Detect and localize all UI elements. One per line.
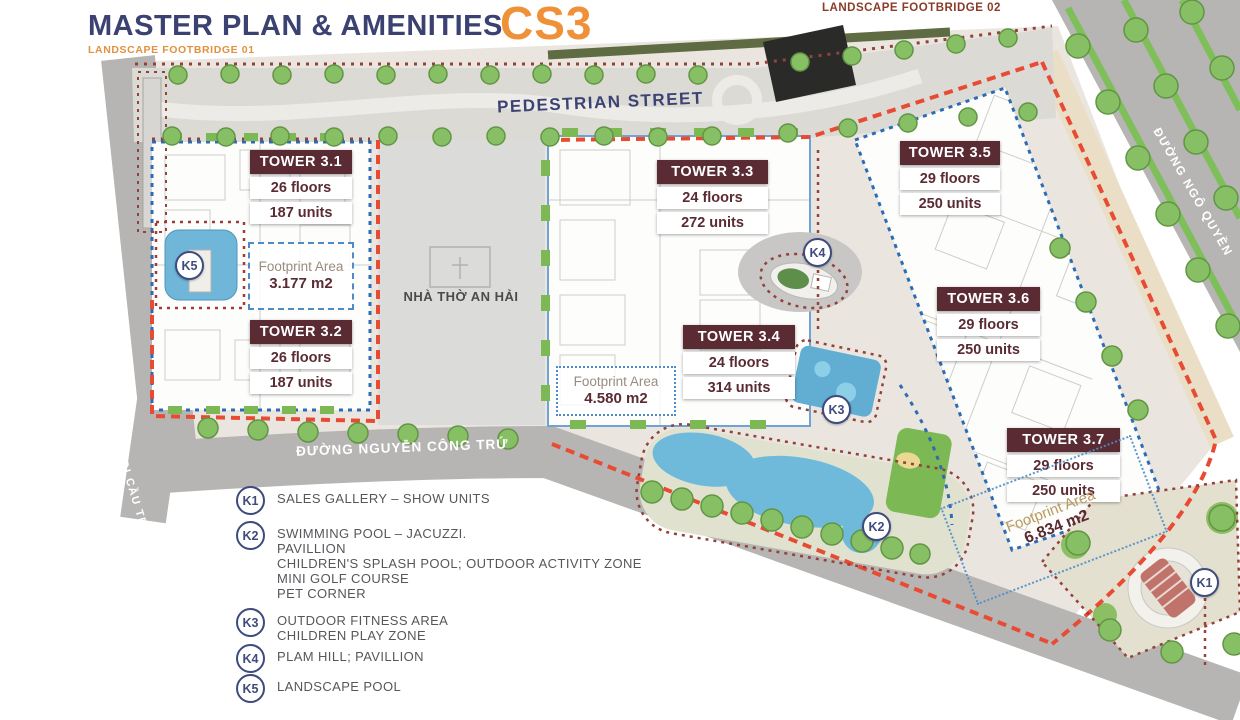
legend-item-k2: K2 SWIMMING POOL – JACUZZI. PAVILLION CH…: [236, 521, 642, 601]
legend-text: MINI GOLF COURSE: [277, 571, 642, 586]
tower-3-6-name: TOWER 3.6: [937, 287, 1040, 311]
tower-3-4-infobox: TOWER 3.4 24 floors 314 units: [683, 325, 795, 399]
footprint-value: 4.580 m2: [558, 390, 674, 408]
church-label: NHÀ THỜ AN HẢI: [396, 289, 526, 304]
map-marker-k3: K3: [822, 395, 851, 424]
master-plan-page: MASTER PLAN & AMENITIES CS3 LANDSCAPE FO…: [0, 0, 1240, 720]
footprint-label: Footprint Area: [558, 374, 674, 390]
legend-marker-k2: K2: [236, 521, 265, 550]
tower-3-3-units: 272 units: [657, 212, 768, 234]
legend-item-k3: K3 OUTDOOR FITNESS AREA CHILDREN PLAY ZO…: [236, 608, 448, 643]
footprint-value: 3.177 m2: [250, 275, 352, 293]
landscape-footbridge-01-label: LANDSCAPE FOOTBRIDGE 01: [88, 44, 255, 56]
tower-3-1-infobox: TOWER 3.1 26 floors 187 units: [250, 150, 352, 224]
legend-text: LANDSCAPE POOL: [277, 679, 401, 694]
tower-3-2-infobox: TOWER 3.2 26 floors 187 units: [250, 320, 352, 394]
landscape-footbridge-02-label: LANDSCAPE FOOTBRIDGE 02: [822, 2, 1001, 14]
tower-3-5-units: 250 units: [900, 193, 1000, 215]
footprint-label: Footprint Area: [250, 259, 352, 275]
legend-text: PET CORNER: [277, 586, 642, 601]
tower-3-5-floors: 29 floors: [900, 168, 1000, 190]
legend-item-k1: K1 SALES GALLERY – SHOW UNITS: [236, 486, 490, 515]
k4-palm-hill-pavillion: [738, 232, 862, 312]
tower-3-4-name: TOWER 3.4: [683, 325, 795, 349]
legend-item-k5: K5 LANDSCAPE POOL: [236, 674, 401, 703]
tower-3-1-units: 187 units: [250, 202, 352, 224]
legend-marker-k3: K3: [236, 608, 265, 637]
tower-3-1-floors: 26 floors: [250, 177, 352, 199]
legend-marker-k4: K4: [236, 644, 265, 673]
legend-marker-k1: K1: [236, 486, 265, 515]
legend-item-k4: K4 PLAM HILL; PAVILLION: [236, 644, 424, 673]
church-plot: [378, 140, 545, 425]
legend-marker-k5: K5: [236, 674, 265, 703]
map-marker-k2: K2: [862, 512, 891, 541]
page-title: MASTER PLAN & AMENITIES: [88, 10, 503, 43]
map-marker-k5: K5: [175, 251, 204, 280]
legend-text: CHILDREN PLAY ZONE: [277, 628, 448, 643]
legend-text: SWIMMING POOL – JACUZZI.: [277, 526, 642, 541]
tower-3-6-floors: 29 floors: [937, 314, 1040, 336]
tower-3-5-name: TOWER 3.5: [900, 141, 1000, 165]
legend-text: CHILDREN'S SPLASH POOL; OUTDOOR ACTIVITY…: [277, 556, 642, 571]
tower-3-3-name: TOWER 3.3: [657, 160, 768, 184]
tower-3-6-infobox: TOWER 3.6 29 floors 250 units: [937, 287, 1040, 361]
legend-text: OUTDOOR FITNESS AREA: [277, 613, 448, 628]
tower-3-4-units: 314 units: [683, 377, 795, 399]
map-marker-k1: K1: [1190, 568, 1219, 597]
tower-3-5-infobox: TOWER 3.5 29 floors 250 units: [900, 141, 1000, 215]
project-logo: CS3: [500, 0, 592, 50]
tower-3-1-name: TOWER 3.1: [250, 150, 352, 174]
map-marker-k4: K4: [803, 238, 832, 267]
tower-3-6-units: 250 units: [937, 339, 1040, 361]
tower-3-2-name: TOWER 3.2: [250, 320, 352, 344]
tower-3-2-units: 187 units: [250, 372, 352, 394]
legend-text: PAVILLION: [277, 541, 642, 556]
legend-text: PLAM HILL; PAVILLION: [277, 649, 424, 664]
tower-3-4-floors: 24 floors: [683, 352, 795, 374]
tower-3-2-floors: 26 floors: [250, 347, 352, 369]
footprint-area-tower-33-34: Footprint Area 4.580 m2: [556, 366, 676, 416]
tower-3-3-infobox: TOWER 3.3 24 floors 272 units: [657, 160, 768, 234]
legend-text: SALES GALLERY – SHOW UNITS: [277, 491, 490, 506]
footprint-area-tower-31-32: Footprint Area 3.177 m2: [248, 242, 354, 310]
tower-3-3-floors: 24 floors: [657, 187, 768, 209]
